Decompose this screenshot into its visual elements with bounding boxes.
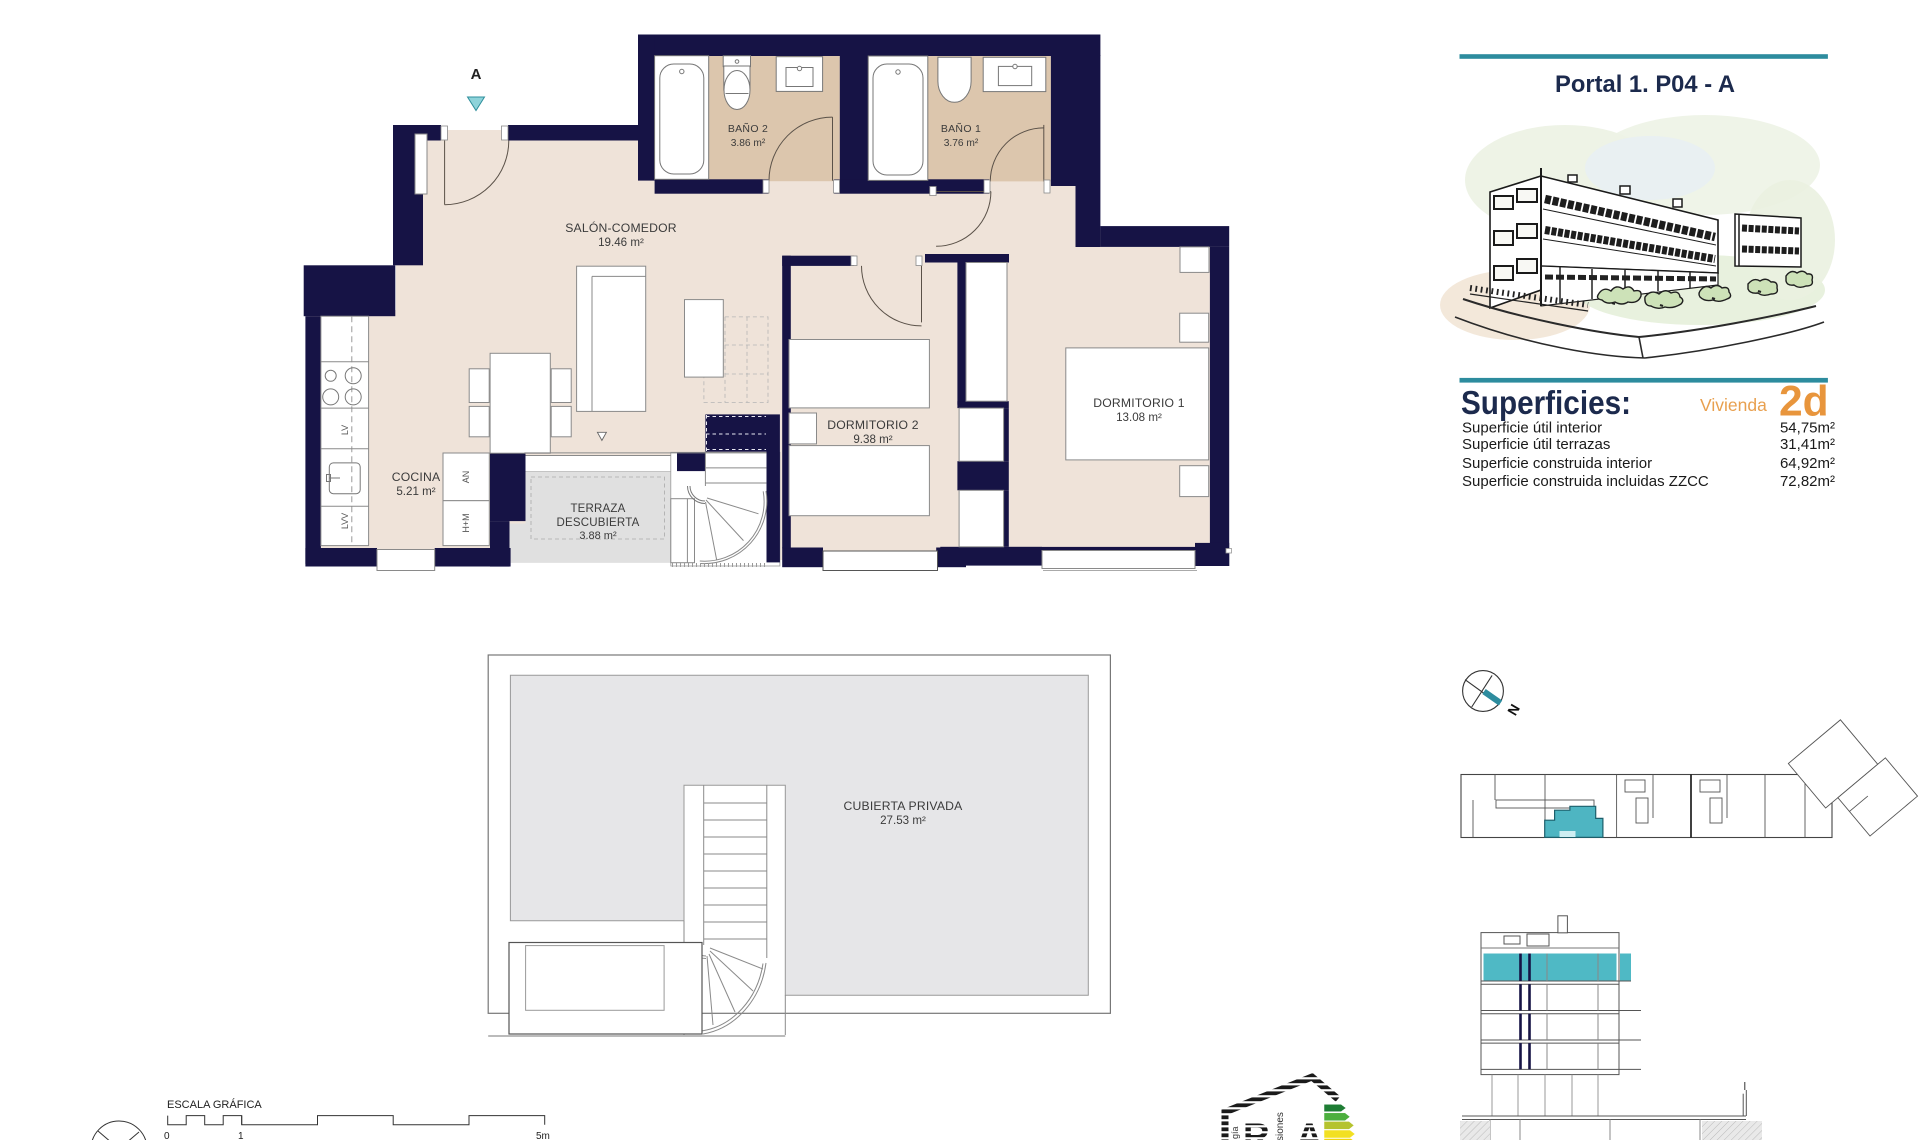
svg-text:Superficie construida interior: Superficie construida interior bbox=[1462, 455, 1652, 472]
svg-text:Portal 1. P04 - A: Portal 1. P04 - A bbox=[1555, 71, 1735, 98]
svg-text:H+M: H+M bbox=[461, 513, 471, 532]
svg-text:siones: siones bbox=[1275, 1112, 1286, 1140]
svg-text:LV: LV bbox=[340, 425, 350, 435]
svg-text:DESCUBIERTA: DESCUBIERTA bbox=[557, 517, 640, 529]
svg-text:Superficie útil interior: Superficie útil interior bbox=[1462, 420, 1602, 437]
svg-text:BAÑO 2: BAÑO 2 bbox=[728, 122, 768, 135]
svg-text:Superficie construida incluida: Superficie construida incluidas ZZCC bbox=[1462, 473, 1709, 490]
svg-text:SALÓN-COMEDOR: SALÓN-COMEDOR bbox=[565, 220, 677, 235]
svg-text:Superficie útil terrazas: Superficie útil terrazas bbox=[1462, 436, 1610, 453]
svg-text:COCINA: COCINA bbox=[392, 470, 441, 484]
svg-text:DORMITORIO 2: DORMITORIO 2 bbox=[827, 418, 919, 432]
svg-text:1: 1 bbox=[238, 1131, 244, 1140]
svg-text:AN: AN bbox=[461, 471, 471, 484]
svg-text:3.86 m²: 3.86 m² bbox=[731, 138, 766, 149]
svg-text:9.38 m²: 9.38 m² bbox=[853, 433, 892, 446]
svg-text:5.21 m²: 5.21 m² bbox=[396, 485, 435, 498]
svg-text:3.88 m²: 3.88 m² bbox=[579, 530, 617, 542]
svg-text:72,82m²: 72,82m² bbox=[1780, 473, 1835, 490]
svg-text:64,92m²: 64,92m² bbox=[1780, 455, 1835, 472]
svg-text:ESCALA GRÁFICA: ESCALA GRÁFICA bbox=[167, 1098, 262, 1111]
svg-text:27.53 m²: 27.53 m² bbox=[880, 814, 926, 827]
svg-text:LVV: LVV bbox=[340, 513, 350, 529]
svg-text:BAÑO 1: BAÑO 1 bbox=[941, 122, 981, 135]
svg-text:gía: gía bbox=[1230, 1126, 1240, 1139]
svg-text:A: A bbox=[471, 66, 482, 83]
svg-text:R: R bbox=[1243, 1116, 1270, 1140]
svg-text:5m: 5m bbox=[536, 1131, 550, 1140]
svg-text:CUBIERTA PRIVADA: CUBIERTA PRIVADA bbox=[843, 799, 963, 813]
svg-text:0: 0 bbox=[164, 1131, 170, 1140]
svg-text:54,75m²: 54,75m² bbox=[1780, 420, 1835, 437]
svg-text:TERRAZA: TERRAZA bbox=[570, 503, 625, 515]
svg-text:N: N bbox=[1504, 702, 1523, 719]
svg-text:31,41m²: 31,41m² bbox=[1780, 436, 1835, 453]
svg-text:A: A bbox=[1296, 1116, 1323, 1140]
svg-text:Superficies:: Superficies: bbox=[1461, 384, 1631, 421]
svg-text:19.46 m²: 19.46 m² bbox=[598, 236, 644, 249]
svg-text:3.76 m²: 3.76 m² bbox=[944, 138, 979, 149]
svg-text:13.08 m²: 13.08 m² bbox=[1116, 411, 1162, 424]
svg-text:DORMITORIO 1: DORMITORIO 1 bbox=[1093, 396, 1185, 410]
svg-text:Vivienda: Vivienda bbox=[1700, 395, 1767, 415]
svg-text:2d: 2d bbox=[1779, 379, 1829, 426]
